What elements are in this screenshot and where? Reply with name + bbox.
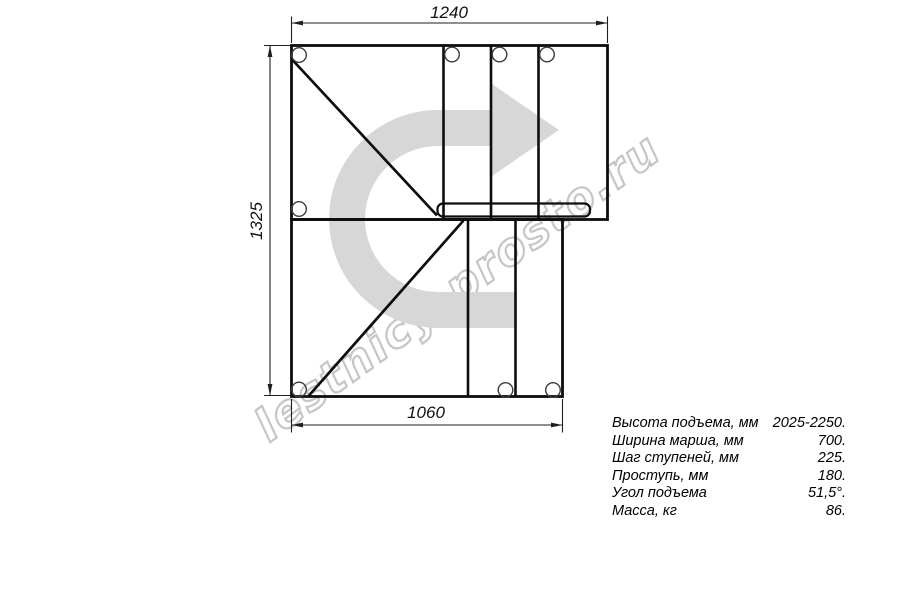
spec-row-mass: Масса, кг 86. [612,503,846,521]
spec-value: 700. [818,433,846,451]
spec-label: Проступь, мм [612,468,708,486]
spec-row-angle: Угол подъема 51,5°. [612,485,846,503]
mounting-hole [292,48,307,63]
spec-label: Ширина марша, мм [612,433,744,451]
spec-label: Шаг ступеней, мм [612,450,739,468]
mounting-hole [445,47,460,62]
staircase-drawing-page: lestnicy-prosto.ru [0,0,900,600]
dimension-arrowheads [268,21,608,428]
spec-row-tread: Проступь, мм 180. [612,468,846,486]
spec-value: 2025-2250. [773,415,846,433]
spec-value: 51,5°. [808,485,846,503]
spec-table: Высота подъема, мм 2025-2250. Ширина мар… [612,415,846,521]
mounting-hole [292,202,307,217]
landing-step-plate [438,204,591,217]
dimension-label-top-width: 1240 [404,3,494,23]
spec-row-height: Высота подъема, мм 2025-2250. [612,415,846,433]
mounting-hole [292,382,307,397]
spec-value: 225. [818,450,846,468]
spec-value: 180. [818,468,846,486]
spec-value: 86. [826,503,846,521]
spec-row-flight-width: Ширина марша, мм 700. [612,433,846,451]
dimension-label-left-height: 1325 [247,176,267,266]
spec-row-step-pitch: Шаг ступеней, мм 225. [612,450,846,468]
step-divider-lines [444,46,539,397]
spec-label: Высота подъема, мм [612,415,759,433]
dimension-lines [264,17,608,433]
dimension-label-bottom-width: 1060 [381,403,471,423]
mounting-hole [492,47,507,62]
mounting-hole [540,47,555,62]
spec-label: Масса, кг [612,503,677,521]
spec-label: Угол подъема [612,485,707,503]
